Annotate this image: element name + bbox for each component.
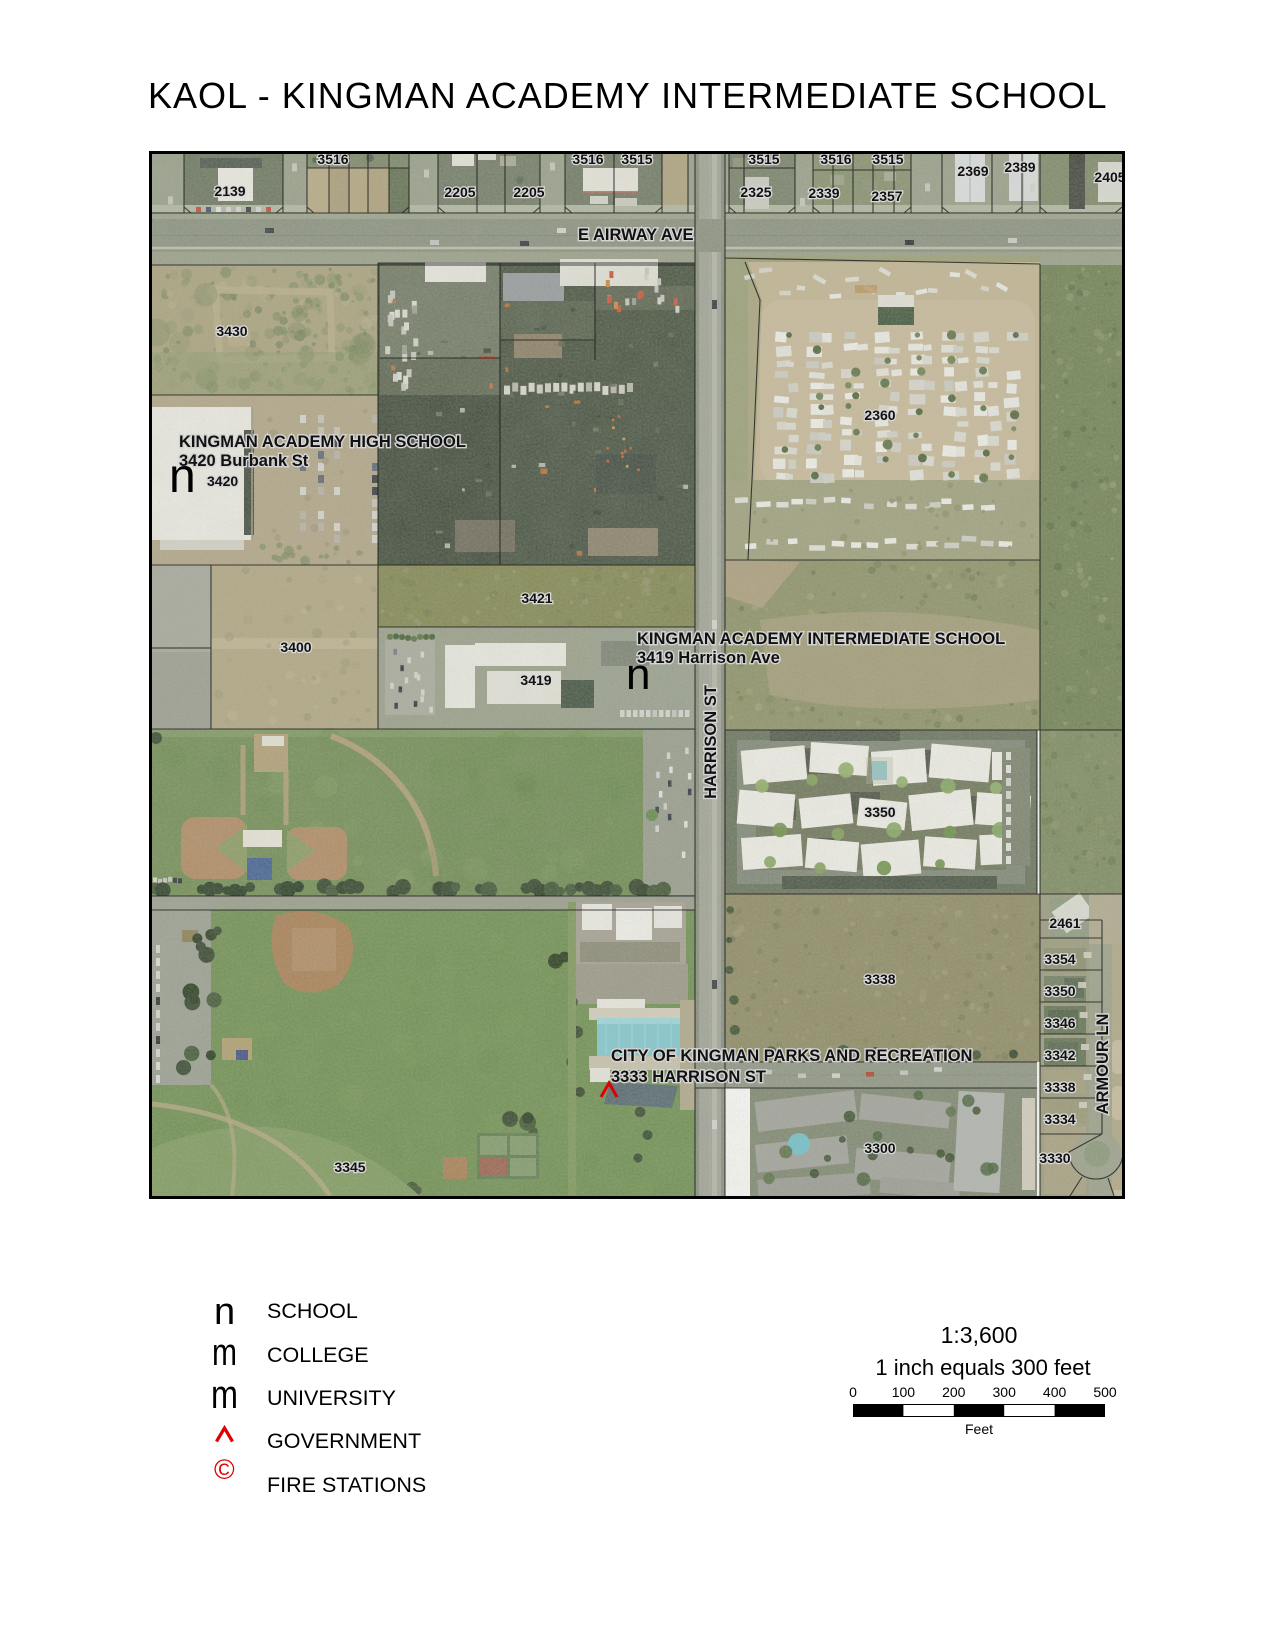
svg-text:3420: 3420 (207, 473, 238, 489)
svg-text:3300: 3300 (864, 1140, 895, 1156)
svg-text:GOVERNMENT: GOVERNMENT (267, 1429, 421, 1453)
svg-text:3515: 3515 (748, 154, 779, 167)
svg-text:KINGMAN ACADEMY HIGH SCHOOL: KINGMAN ACADEMY HIGH SCHOOL (179, 433, 466, 451)
svg-text:3354: 3354 (1044, 951, 1075, 967)
svg-text:m: m (212, 1332, 237, 1374)
svg-text:100: 100 (892, 1384, 916, 1400)
svg-text:3515: 3515 (621, 154, 652, 167)
svg-text:FIRE STATIONS: FIRE STATIONS (267, 1473, 426, 1497)
svg-text:2205: 2205 (513, 184, 544, 200)
svg-text:3350: 3350 (1044, 983, 1075, 999)
svg-text:3338: 3338 (1044, 1079, 1075, 1095)
svg-text:HARRISON ST: HARRISON ST (702, 685, 720, 799)
svg-text:n: n (169, 450, 196, 503)
svg-text:0: 0 (849, 1384, 857, 1400)
svg-text:2369: 2369 (957, 163, 988, 179)
svg-text:2360: 2360 (864, 407, 895, 423)
svg-text:2461: 2461 (1049, 915, 1080, 931)
svg-text:n: n (626, 650, 650, 699)
svg-text:KINGMAN ACADEMY INTERMEDIATE S: KINGMAN ACADEMY INTERMEDIATE SCHOOL (637, 630, 1005, 648)
svg-text:©: © (214, 1454, 235, 1485)
svg-text:200: 200 (942, 1384, 966, 1400)
svg-text:3330: 3330 (1039, 1150, 1070, 1166)
svg-text:UNIVERSITY: UNIVERSITY (267, 1386, 396, 1410)
svg-text:500: 500 (1093, 1384, 1117, 1400)
svg-text:3334: 3334 (1044, 1111, 1075, 1127)
svg-text:3430: 3430 (216, 323, 247, 339)
svg-text:3400: 3400 (280, 639, 311, 655)
svg-text:CITY OF KINGMAN PARKS AND RECR: CITY OF KINGMAN PARKS AND RECREATION (611, 1047, 972, 1065)
svg-text:3420 Burbank St: 3420 Burbank St (179, 452, 309, 470)
svg-text:2325: 2325 (740, 184, 771, 200)
svg-text:3342: 3342 (1044, 1047, 1075, 1063)
svg-text:E AIRWAY AVE: E AIRWAY AVE (578, 226, 694, 244)
svg-text:3515: 3515 (872, 154, 903, 167)
svg-text:3338: 3338 (864, 971, 895, 987)
svg-text:2357: 2357 (871, 188, 902, 204)
svg-text:SCHOOL: SCHOOL (267, 1299, 358, 1323)
svg-text:m: m (211, 1373, 238, 1417)
svg-text:300: 300 (993, 1384, 1017, 1400)
svg-text:2139: 2139 (214, 183, 245, 199)
svg-text:3345: 3345 (334, 1159, 365, 1175)
svg-text:COLLEGE: COLLEGE (267, 1343, 369, 1367)
svg-text:ARMOUR LN: ARMOUR LN (1094, 1014, 1112, 1115)
svg-text:2339: 2339 (808, 185, 839, 201)
svg-text:3333 HARRISON ST: 3333 HARRISON ST (611, 1068, 766, 1086)
svg-text:3516: 3516 (820, 154, 851, 167)
svg-text:Feet: Feet (965, 1421, 993, 1437)
svg-text:3516: 3516 (572, 154, 603, 167)
svg-text:400: 400 (1043, 1384, 1067, 1400)
svg-text:3419 Harrison Ave: 3419 Harrison Ave (637, 649, 780, 667)
svg-text:2389: 2389 (1004, 159, 1035, 175)
svg-text:3421: 3421 (521, 590, 552, 606)
svg-text:2405: 2405 (1094, 169, 1122, 185)
svg-text:3419: 3419 (520, 672, 551, 688)
svg-text:n: n (214, 1291, 235, 1333)
svg-text:3516: 3516 (317, 154, 348, 167)
svg-text:2205: 2205 (444, 184, 475, 200)
svg-text:3346: 3346 (1044, 1015, 1075, 1031)
svg-text:3350: 3350 (864, 804, 895, 820)
